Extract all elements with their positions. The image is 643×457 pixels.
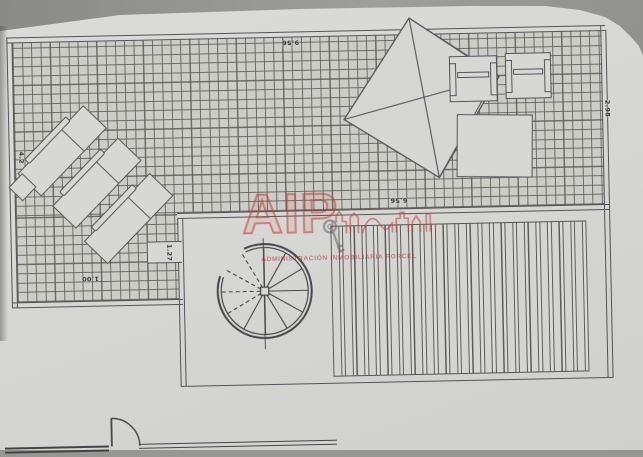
chair-back: [513, 68, 543, 75]
chair-armrest: [505, 60, 513, 93]
photo-of-floor-plan: { "document": { "kind": "roof terrace fl…: [0, 0, 643, 450]
room-bottom-line: [181, 377, 613, 387]
stair-room-left-wall-inner: [182, 218, 187, 387]
wall-segment-left-2: [5, 449, 109, 453]
floor-plan: 9.56 2.98 6.56 4.2 1.27 1.00 AIP: [0, 0, 643, 457]
door-swing: [104, 412, 145, 453]
dimension-left: 4.2: [16, 145, 26, 171]
chair-armrest: [490, 62, 498, 95]
chair-1: [449, 55, 498, 102]
table: [457, 114, 533, 177]
chair-armrest: [449, 63, 457, 96]
chair-2: [505, 52, 552, 99]
lounger-divider: [127, 196, 150, 218]
ledge-bottom-inner: [12, 304, 183, 309]
chair-back: [457, 71, 489, 78]
chair-armrest: [544, 59, 552, 92]
wall-segment-left: [5, 445, 109, 449]
dimension-right: 2.98: [602, 95, 612, 121]
dimension-top: 9.56: [277, 37, 303, 47]
lounger-divider: [95, 160, 118, 182]
dimension-ledge: 1.00: [77, 274, 103, 284]
watermark: AIP ADMINISTRACIÓN INMOBILIARIA PORCEL: [242, 188, 435, 264]
paper-edge-shadow: [0, 26, 8, 341]
lounger-divider: [61, 128, 84, 150]
dimension-stair: 1.27: [164, 240, 174, 266]
